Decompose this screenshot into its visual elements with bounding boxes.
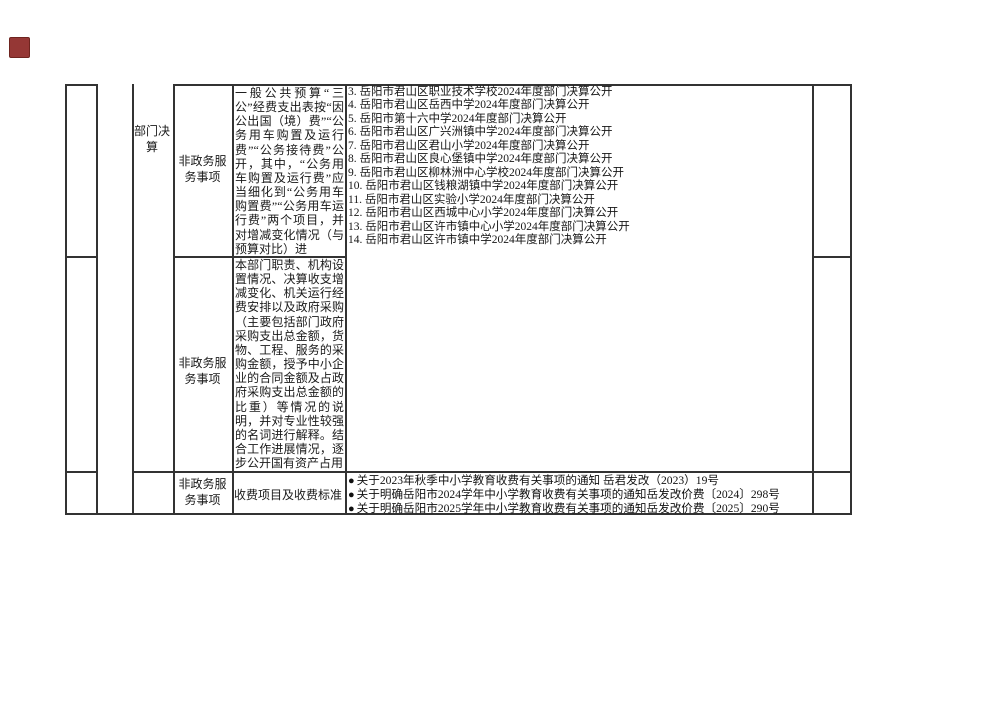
bullet-icon: ● (348, 502, 355, 516)
grid-line (812, 84, 814, 515)
document-page: 部门决算 非政务服务事项 非政务服务事项 非政务服务事项 一般公共预算“三公”经… (0, 0, 1000, 706)
grid-line (132, 471, 852, 473)
grid-line (65, 471, 98, 473)
list-item: 9. 岳阳市君山区柳林洲中心学校2024年度部门决算公开 (348, 167, 630, 180)
notice-item: ●关于明确岳阳市2025学年中小学教育收费有关事项的通知岳发改价费〔2025〕2… (348, 502, 780, 516)
list-item: 13. 岳阳市君山区许市镇中心小学2024年度部门决算公开 (348, 221, 630, 234)
grid-line (232, 84, 234, 515)
list-item: 6. 岳阳市君山区广兴洲镇中学2024年度部门决算公开 (348, 126, 630, 139)
grid-line (96, 84, 98, 515)
list-item: 4. 岳阳市君山区岳西中学2024年度部门决算公开 (348, 99, 630, 112)
category-cell-row1: 非政务服务事项 (174, 154, 231, 185)
red-annotation-marker (9, 37, 30, 58)
list-item: 14. 岳阳市君山区许市镇中学2024年度部门决算公开 (348, 234, 630, 247)
notice-item: ●关于明确岳阳市2024学年中小学教育收费有关事项的通知岳发改价费〔2024〕2… (348, 488, 780, 502)
notice-text: 关于明确岳阳市2024学年中小学教育收费有关事项的通知岳发改价费〔2024〕29… (357, 488, 780, 501)
bullet-icon: ● (348, 488, 355, 502)
grid-line (812, 256, 852, 258)
category-cell-row3: 非政务服务事项 (174, 477, 231, 508)
notice-list: ●关于2023年秋季中小学教育收费有关事项的通知 岳君发改（2023）19号 ●… (348, 474, 780, 517)
grid-line (65, 84, 98, 86)
list-item: 11. 岳阳市君山区实验小学2024年度部门决算公开 (348, 194, 630, 207)
list-item: 7. 岳阳市君山区君山小学2024年度部门决算公开 (348, 140, 630, 153)
list-item: 10. 岳阳市君山区钱粮湖镇中学2024年度部门决算公开 (348, 180, 630, 193)
section-cell-label: 部门决算 (134, 124, 170, 155)
grid-line (345, 84, 347, 515)
list-item: 12. 岳阳市君山区西城中心小学2024年度部门决算公开 (348, 207, 630, 220)
list-item: 5. 岳阳市第十六中学2024年度部门决算公开 (348, 113, 630, 126)
bullet-icon: ● (348, 474, 355, 488)
category-cell-row2: 非政务服务事项 (174, 356, 231, 387)
item-text-row1: 一般公共预算“三公”经费支出表按“因公出国（境）费”“公务用车购置及运行费”“公… (235, 86, 344, 256)
notice-text: 关于明确岳阳市2025学年中小学教育收费有关事项的通知岳发改价费〔2025〕29… (357, 502, 780, 515)
list-item: 3. 岳阳市君山区职业技术学校2024年度部门决算公开 (348, 86, 630, 99)
notice-text: 关于2023年秋季中小学教育收费有关事项的通知 岳君发改（2023）19号 (357, 474, 719, 487)
notice-item: ●关于2023年秋季中小学教育收费有关事项的通知 岳君发改（2023）19号 (348, 474, 780, 488)
grid-line (173, 84, 175, 515)
disclosure-list: 3. 岳阳市君山区职业技术学校2024年度部门决算公开 4. 岳阳市君山区岳西中… (348, 86, 630, 247)
item-text-row3: 收费项目及收费标准 (234, 486, 345, 503)
grid-line (850, 84, 852, 515)
grid-line (65, 84, 67, 515)
list-item: 8. 岳阳市君山区良心堡镇中学2024年度部门决算公开 (348, 153, 630, 166)
grid-line (65, 256, 98, 258)
item-text-row2: 本部门职责、机构设置情况、决算收支增减变化、机关运行经费安排以及政府采购（主要包… (235, 258, 344, 471)
